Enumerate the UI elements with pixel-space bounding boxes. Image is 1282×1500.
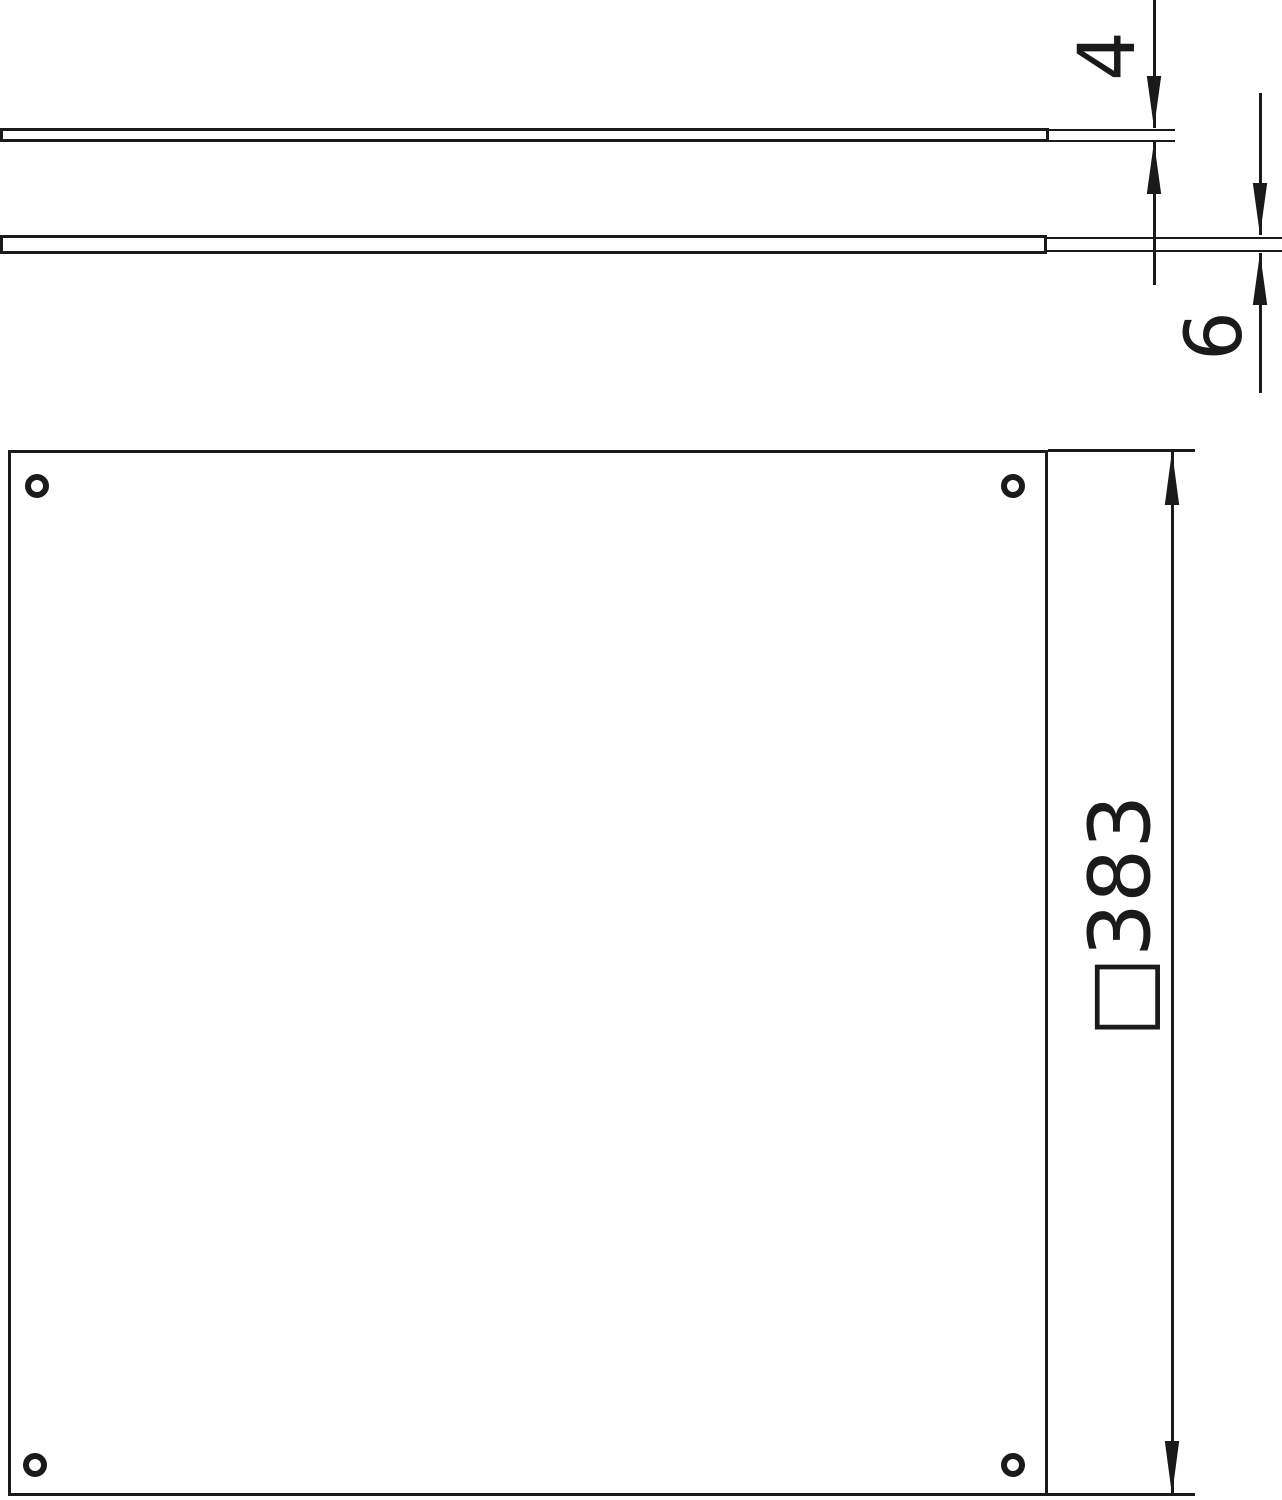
- arrow-up-icon: [1251, 253, 1269, 305]
- arrow-down-icon: [1163, 1441, 1181, 1495]
- arrow-up-icon: [1163, 451, 1181, 505]
- arrow-up-icon: [1145, 142, 1163, 194]
- screw-hole-icon: [1001, 474, 1025, 498]
- dimension-label-6: 6: [1176, 311, 1254, 361]
- screw-hole-icon: [23, 1453, 47, 1477]
- dimension-label-383: □383: [1079, 795, 1164, 1038]
- side-view-bottom-plate: [0, 235, 1047, 254]
- dimension-label-4: 4: [1069, 31, 1147, 81]
- extension-line: [1046, 237, 1282, 239]
- arrow-down-icon: [1145, 76, 1163, 128]
- arrow-down-icon: [1251, 183, 1269, 235]
- screw-hole-icon: [25, 474, 49, 498]
- dimension-line: [1171, 450, 1174, 1496]
- plan-view-plate: [8, 450, 1048, 1496]
- screw-hole-icon: [1001, 1453, 1025, 1477]
- extension-line: [1048, 129, 1175, 131]
- extension-line: [1046, 250, 1282, 252]
- side-view-top-plate: [0, 128, 1049, 142]
- technical-drawing-canvas: 4 6 □383: [0, 0, 1282, 1500]
